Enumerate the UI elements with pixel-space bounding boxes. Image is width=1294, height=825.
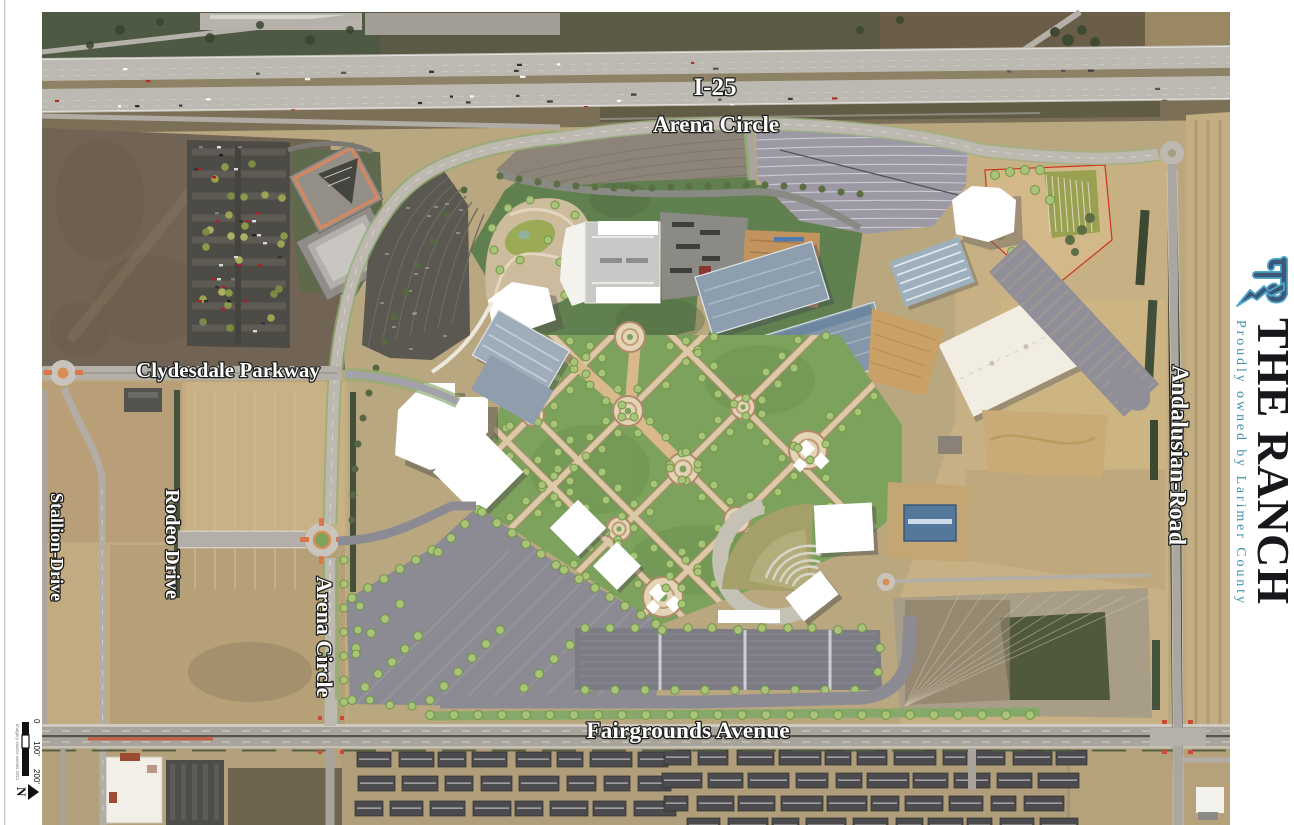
svg-text:Proudly owned by Larimer Count: Proudly owned by Larimer County (1233, 320, 1248, 606)
svg-text:200': 200' (32, 769, 41, 784)
svg-text:Arena Circle: Arena Circle (653, 112, 779, 137)
svg-text:Fairgrounds Avenue: Fairgrounds Avenue (586, 718, 789, 744)
svg-text:N: N (14, 787, 29, 797)
svg-text:100': 100' (32, 741, 41, 756)
svg-text:Andalusian-Road: Andalusian-Road (1163, 365, 1192, 546)
svg-text:THE RANCH: THE RANCH (1248, 318, 1294, 605)
svg-text:0: 0 (32, 719, 41, 724)
svg-text:Rodeo Drive: Rodeo Drive (161, 489, 183, 599)
svg-text:Clydesdale Parkway: Clydesdale Parkway (136, 358, 320, 382)
svg-text:I-25: I-25 (693, 74, 736, 101)
svg-text:Arena Circle: Arena Circle (312, 577, 337, 698)
svg-text:Stallion-Drive: Stallion-Drive (47, 493, 67, 601)
svg-text:imagery source aerials 2021: imagery source aerials 2021 (15, 724, 20, 781)
